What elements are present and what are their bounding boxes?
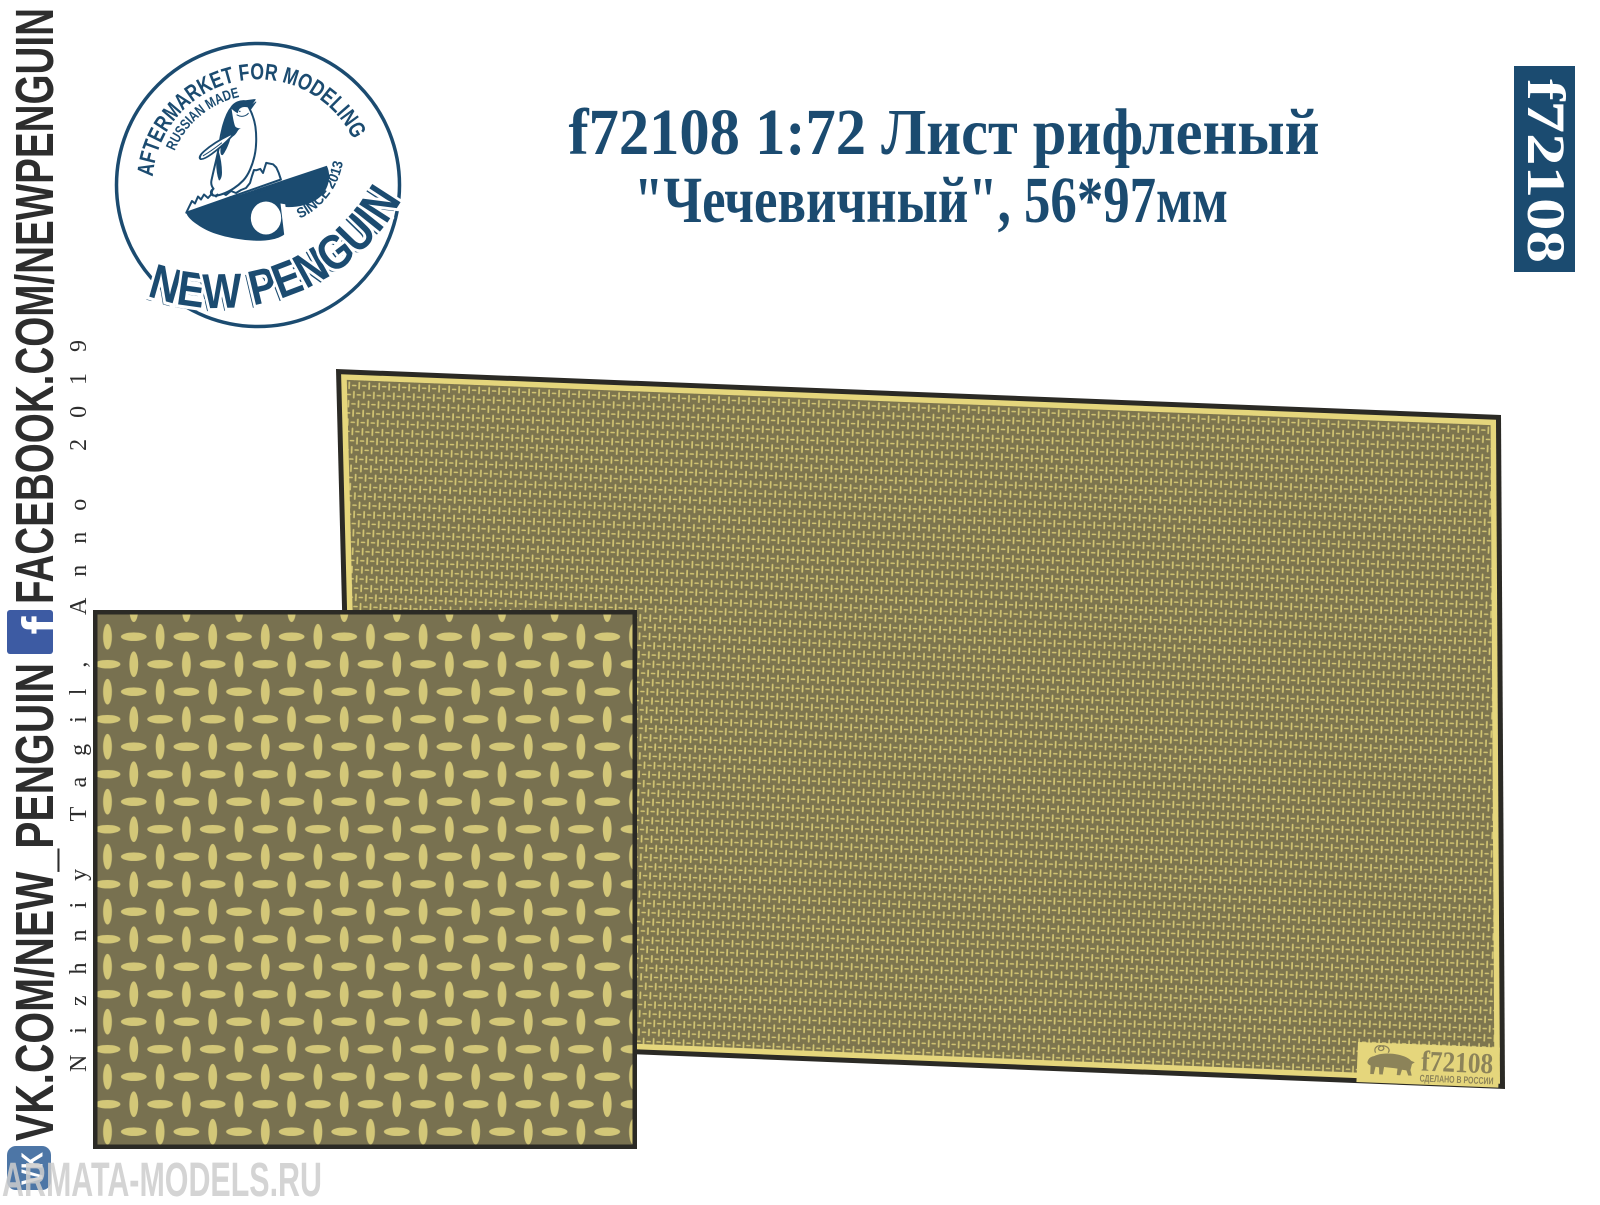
svg-text:ARMATA-MODELS.RU: ARMATA-MODELS.RU bbox=[2, 1154, 322, 1200]
svg-text:VK.COM/NEW_PENGUIN: VK.COM/NEW_PENGUIN bbox=[5, 663, 65, 1141]
svg-text:f72108 1:72 Лист рифленый: f72108 1:72 Лист рифленый bbox=[569, 96, 1320, 169]
svg-text:f72108: f72108 bbox=[1516, 79, 1576, 263]
svg-text:"Чечевичный", 56*97мм: "Чечевичный", 56*97мм bbox=[634, 164, 1228, 237]
svg-text:FACEBOOK.COM/NEWPENGUIN: FACEBOOK.COM/NEWPENGUIN bbox=[5, 8, 65, 604]
